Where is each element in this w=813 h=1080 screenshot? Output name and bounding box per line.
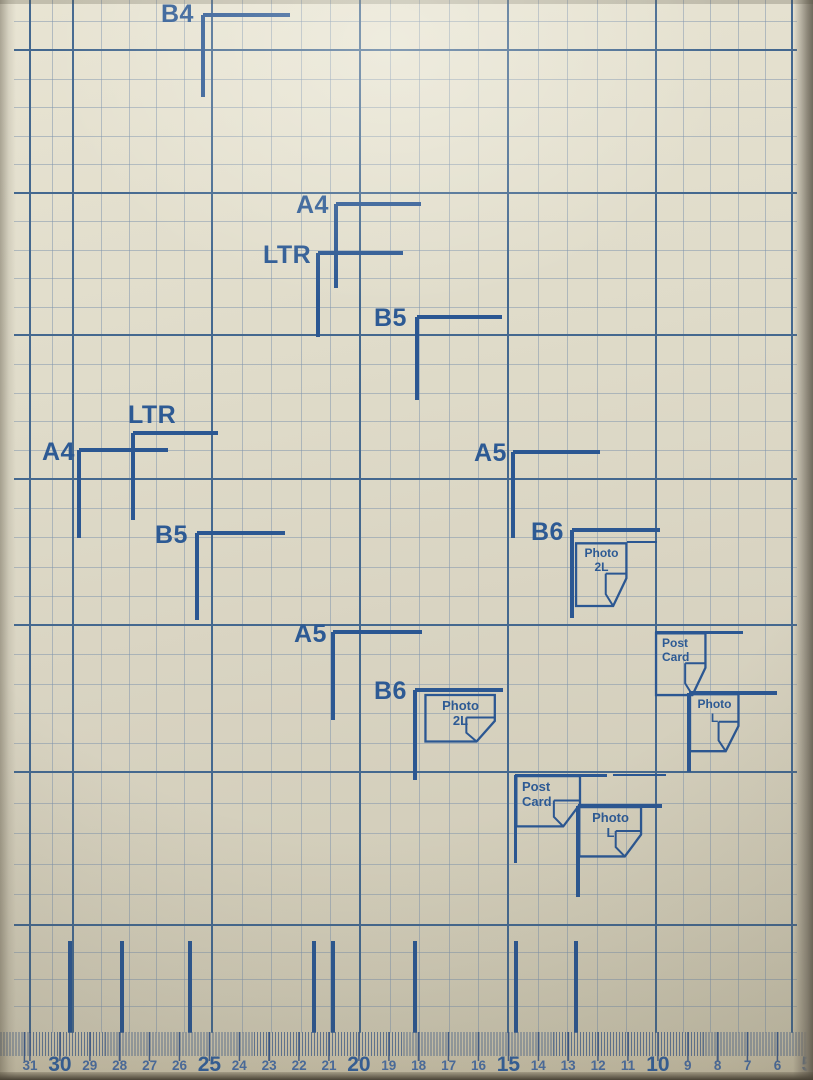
paper-icon-post-card-right: PostCard xyxy=(655,632,707,697)
marker-corner-horizontal-line xyxy=(336,202,421,206)
ruler-number-17: 17 xyxy=(441,1059,456,1073)
size-label: LTR xyxy=(128,403,176,428)
marker-corner-vertical-line xyxy=(334,204,338,288)
grid-line-major-horizontal xyxy=(14,478,797,480)
grid-line-fine-vertical xyxy=(419,0,420,1033)
grid-line-fine-horizontal xyxy=(14,278,797,279)
grid-line-major-vertical xyxy=(507,0,509,1033)
folded-page-icon xyxy=(655,632,707,697)
grid-line-major-vertical xyxy=(791,0,793,1033)
grid-line-major-horizontal xyxy=(14,334,797,336)
marker-corner-horizontal-line xyxy=(417,315,502,319)
paper-icon-label-line1: Post xyxy=(522,780,582,795)
size-label: A5 xyxy=(294,622,327,647)
grid-line-fine-horizontal xyxy=(14,79,797,80)
ruler-number-14: 14 xyxy=(531,1059,546,1073)
paper-icon-label-line1: Photo xyxy=(424,699,497,714)
grid-line-major-vertical xyxy=(655,0,657,1033)
paper-icon-label-line1: Photo xyxy=(578,811,643,826)
grid-line-fine-horizontal xyxy=(14,164,797,165)
marker-corner-vertical-line xyxy=(415,317,419,400)
marker-corner-vertical-line xyxy=(687,693,691,772)
grid-line-fine-horizontal xyxy=(14,250,797,251)
paper-icon-photo-2l-right: Photo2L xyxy=(575,542,628,608)
ruler-alignment-tick xyxy=(188,941,192,1033)
grid-line-major-vertical xyxy=(72,0,74,1033)
grid-line-fine-vertical xyxy=(129,0,130,1033)
paper-icon-label-line2: L xyxy=(578,826,643,841)
grid-line-fine-horizontal xyxy=(14,743,797,744)
alignment-line-segment xyxy=(613,774,666,776)
ruler-alignment-tick xyxy=(413,941,417,1033)
grid-line-major-horizontal xyxy=(14,771,797,773)
paper-icon-label: Photo2L xyxy=(424,699,497,729)
folded-page-icon xyxy=(575,542,628,608)
grid-line-major-horizontal xyxy=(14,192,797,194)
paper-icon-post-card-center: PostCard xyxy=(515,775,582,828)
ruler-number-18: 18 xyxy=(411,1059,426,1073)
ruler-number-7: 7 xyxy=(744,1059,752,1073)
ruler-number-15: 15 xyxy=(497,1054,520,1075)
paper-icon-label-line2: Card xyxy=(522,795,582,810)
marker-corner-horizontal-line xyxy=(79,448,168,452)
grid-line-major-vertical xyxy=(29,0,31,1033)
grid-line-fine-horizontal xyxy=(14,508,797,509)
grid-line-fine-vertical xyxy=(52,0,53,1033)
marker-corner-horizontal-line xyxy=(133,431,218,435)
marker-corner-horizontal-line xyxy=(513,450,600,454)
right-platen-edge xyxy=(793,0,813,1080)
marker-corner-vertical-line xyxy=(511,452,515,538)
folded-page-icon xyxy=(515,775,582,828)
ruler-number-12: 12 xyxy=(591,1059,606,1073)
paper-size-markers: B4A4LTRB5LTRA4B5A5B6A5B6 xyxy=(0,0,813,1080)
grid-line-fine-horizontal xyxy=(14,364,797,365)
scanner-platen-photo: B4A4LTRB5LTRA4B5A5B6A5B6 Photo2LPhoto2LP… xyxy=(0,0,813,1080)
ruler-number-13: 13 xyxy=(561,1059,576,1073)
ruler-alignment-tick xyxy=(68,941,72,1033)
grid-line-fine-vertical xyxy=(390,0,391,1033)
alignment-line-segment xyxy=(514,775,517,863)
alignment-line-segment xyxy=(655,631,743,634)
vignette xyxy=(0,0,813,1080)
grid-line-fine-horizontal xyxy=(14,654,797,655)
grid-line-fine-horizontal xyxy=(14,952,797,953)
ruler-number-22: 22 xyxy=(292,1059,307,1073)
ruler-number-29: 29 xyxy=(82,1059,97,1073)
marker-corner-vertical-line xyxy=(195,533,199,620)
ruler-mm-ticks xyxy=(0,1032,813,1056)
grid-line-fine-vertical xyxy=(710,0,711,1033)
marker-corner-horizontal-line xyxy=(415,688,503,692)
paper-icon-label-line1: Photo xyxy=(689,698,740,712)
grid-line-fine-vertical xyxy=(101,0,102,1033)
marker-corner-vertical-line xyxy=(77,450,81,538)
marker-corner-horizontal-line xyxy=(203,13,290,17)
ruler-number-11: 11 xyxy=(621,1059,635,1073)
marker-corner-horizontal-line xyxy=(578,804,662,808)
folded-page-icon xyxy=(424,694,497,743)
grid-line-fine-vertical xyxy=(738,0,739,1033)
grid-line-fine-vertical xyxy=(567,0,568,1033)
size-label: B6 xyxy=(531,520,564,545)
marker-corner-vertical-line xyxy=(413,690,417,780)
paper-icon-label-line2: Card xyxy=(662,651,707,665)
grid-line-fine-horizontal xyxy=(14,393,797,394)
grid-line-fine-horizontal xyxy=(14,864,797,865)
grid-line-fine-horizontal xyxy=(14,307,797,308)
paper-icon-label: Photo2L xyxy=(575,547,628,575)
grid-line-major-vertical xyxy=(359,0,361,1033)
ruler-alignment-tick xyxy=(331,941,335,1033)
marker-corner-horizontal-line xyxy=(318,251,403,255)
grid-line-fine-vertical xyxy=(156,0,157,1033)
ruler-alignment-tick xyxy=(312,941,316,1033)
bottom-edge-shadow xyxy=(0,1072,813,1080)
folded-page-icon xyxy=(578,806,643,858)
alignment-line-segment xyxy=(515,774,607,777)
size-label: B5 xyxy=(374,306,407,331)
paper-icon-label-line1: Photo xyxy=(575,547,628,561)
paper-icon-label: PhotoL xyxy=(578,811,643,841)
grid-line-fine-vertical xyxy=(626,0,627,1033)
grid-line-fine-vertical xyxy=(597,0,598,1033)
paper-icon-photo-2l-center: Photo2L xyxy=(424,694,497,743)
grid-line-fine-vertical xyxy=(242,0,243,1033)
marker-corner-vertical-line xyxy=(576,806,580,897)
paper-icon-label: PostCard xyxy=(655,637,707,665)
paper-icon-photo-l-right: PhotoL xyxy=(689,693,740,753)
grid-line-fine-horizontal xyxy=(14,1006,797,1007)
ruler: 3130292827262524232221201918171615141312… xyxy=(0,0,813,1080)
marker-corner-vertical-line xyxy=(331,632,335,720)
size-label: B6 xyxy=(374,679,407,704)
ruler-number-28: 28 xyxy=(112,1059,127,1073)
marker-corner-horizontal-line xyxy=(333,630,422,634)
ruler-alignment-tick xyxy=(574,941,578,1033)
ruler-number-19: 19 xyxy=(381,1059,396,1073)
ruler-alignment-tick xyxy=(120,941,124,1033)
ruler-alignment-tick xyxy=(514,941,518,1033)
size-label: B4 xyxy=(161,2,194,27)
marker-corner-vertical-line xyxy=(201,15,205,97)
ruler-number-20: 20 xyxy=(347,1054,370,1075)
top-edge-shadow xyxy=(0,0,813,4)
grid-line-fine-horizontal xyxy=(14,803,797,804)
paper-icon-photo-l-center: PhotoL xyxy=(578,806,643,858)
size-label: A4 xyxy=(296,193,329,218)
alignment-grid xyxy=(0,0,813,1080)
grid-line-fine-horizontal xyxy=(14,894,797,895)
ruler-number-25: 25 xyxy=(198,1054,221,1075)
grid-line-fine-horizontal xyxy=(14,421,797,422)
grid-line-fine-horizontal xyxy=(14,596,797,597)
paper-type-icons: Photo2LPhoto2LPostCardPhotoLPostCardPhot… xyxy=(0,0,813,1080)
marker-corner-horizontal-line xyxy=(197,531,285,535)
grid-line-fine-horizontal xyxy=(14,21,797,22)
ruler-cm-ticks xyxy=(0,1032,813,1061)
grid-line-fine-horizontal xyxy=(14,979,797,980)
ruler-number-9: 9 xyxy=(684,1059,692,1073)
grid-line-major-horizontal xyxy=(14,624,797,626)
marker-corner-vertical-line xyxy=(316,253,320,337)
ruler-number-26: 26 xyxy=(172,1059,187,1073)
ruler-number-23: 23 xyxy=(262,1059,277,1073)
marker-corner-horizontal-line xyxy=(689,691,777,695)
ruler-number-21: 21 xyxy=(321,1059,336,1073)
ruler-number-30: 30 xyxy=(48,1054,71,1075)
grid-line-fine-vertical xyxy=(683,0,684,1033)
ruler-number-10: 10 xyxy=(646,1054,669,1075)
size-label: A4 xyxy=(42,440,75,465)
ruler-number-16: 16 xyxy=(471,1059,486,1073)
paper-icon-label: PostCard xyxy=(515,780,582,810)
marker-corner-vertical-line xyxy=(131,433,135,520)
photo-lighting xyxy=(0,0,813,1080)
grid-line-fine-horizontal xyxy=(14,136,797,137)
grid-line-fine-vertical xyxy=(301,0,302,1033)
grid-line-fine-vertical xyxy=(765,0,766,1033)
grid-line-major-horizontal xyxy=(14,49,797,51)
left-edge-shadow xyxy=(0,0,16,1080)
ruler-number-24: 24 xyxy=(232,1059,247,1073)
grid-line-fine-horizontal xyxy=(14,537,797,538)
marker-corner-horizontal-line xyxy=(572,528,660,532)
sheen-highlight xyxy=(0,0,813,1080)
grid-line-fine-horizontal xyxy=(14,833,797,834)
grid-line-fine-vertical xyxy=(478,0,479,1033)
ruler-number-6: 6 xyxy=(774,1059,782,1073)
grid-line-fine-horizontal xyxy=(14,107,797,108)
grid-line-major-horizontal xyxy=(14,924,797,926)
ruler-number-27: 27 xyxy=(142,1059,157,1073)
paper-icon-label-line2: 2L xyxy=(424,714,497,729)
paper-icon-label: PhotoL xyxy=(689,698,740,726)
grid-line-fine-horizontal xyxy=(14,567,797,568)
size-label: A5 xyxy=(474,441,507,466)
ruler-number-5: 5 xyxy=(802,1054,813,1075)
grid-line-fine-vertical xyxy=(184,0,185,1033)
paper-icon-label-line2: 2L xyxy=(575,561,628,575)
grid-line-fine-horizontal xyxy=(14,450,797,451)
grid-line-major-vertical xyxy=(211,0,213,1033)
ruler-number-31: 31 xyxy=(22,1059,37,1073)
size-label: B5 xyxy=(155,523,188,548)
marker-corner-vertical-line xyxy=(570,530,574,618)
grid-line-fine-vertical xyxy=(271,0,272,1033)
grid-line-fine-vertical xyxy=(538,0,539,1033)
alignment-line-segment xyxy=(627,541,657,543)
ruler-number-8: 8 xyxy=(714,1059,722,1073)
grid-line-fine-vertical xyxy=(330,0,331,1033)
platen-front-edge-band xyxy=(0,1032,813,1080)
paper-icon-label-line1: Post xyxy=(662,637,707,651)
grid-line-fine-horizontal xyxy=(14,221,797,222)
folded-page-icon xyxy=(689,693,740,753)
grid-line-fine-vertical xyxy=(449,0,450,1033)
paper-icon-label-line2: L xyxy=(689,712,740,726)
grid-line-fine-horizontal xyxy=(14,684,797,685)
size-label: LTR xyxy=(263,243,311,268)
grid-line-fine-horizontal xyxy=(14,713,797,714)
